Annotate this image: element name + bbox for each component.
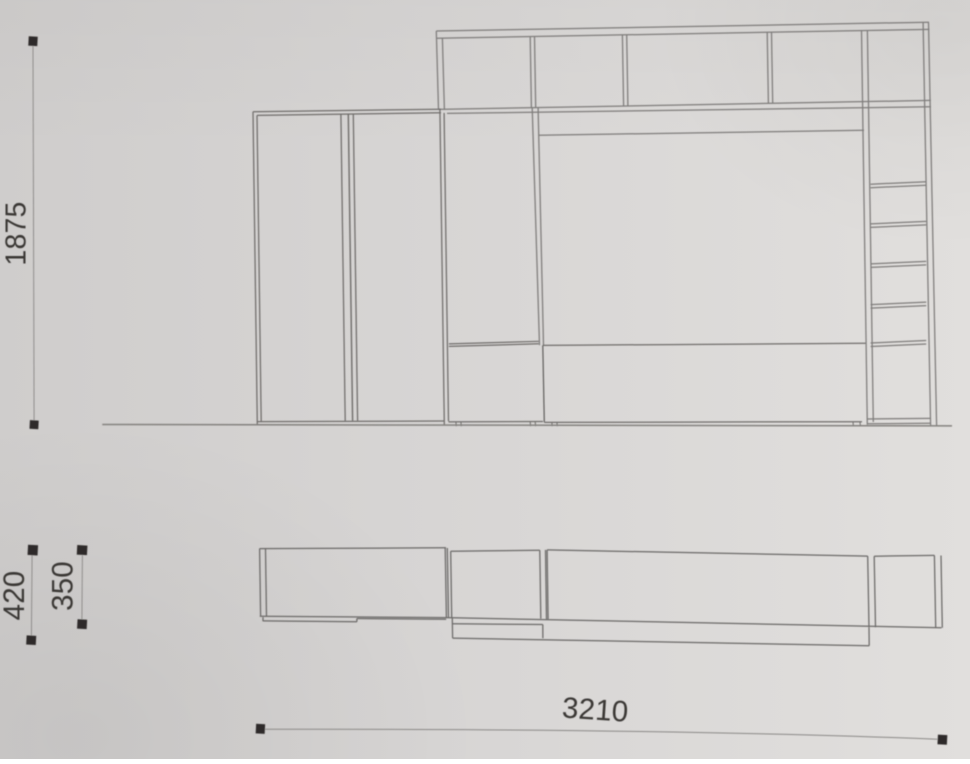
svg-text:1875: 1875 xyxy=(0,201,32,265)
svg-text:350: 350 xyxy=(47,561,80,611)
svg-text:420: 420 xyxy=(0,571,31,621)
svg-text:3210: 3210 xyxy=(561,691,629,728)
